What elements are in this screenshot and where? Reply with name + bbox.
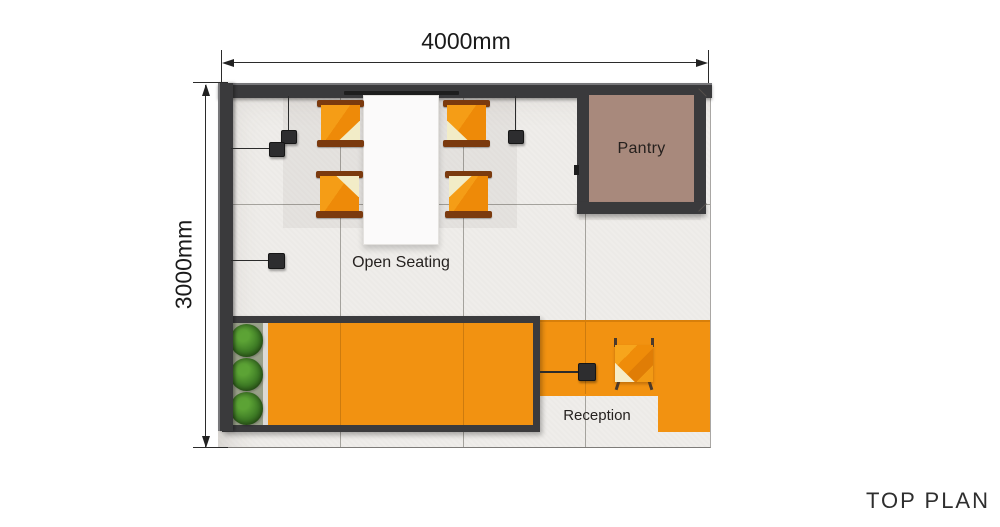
pantry-label: Pantry bbox=[617, 140, 665, 158]
lamp-wire-5 bbox=[540, 371, 578, 373]
pantry-wall-bottom bbox=[577, 202, 706, 214]
lamp-wire-1 bbox=[288, 96, 289, 130]
pendant-light-icon bbox=[578, 363, 596, 381]
lamp-wire-4 bbox=[231, 260, 268, 261]
reception-label: Reception bbox=[537, 407, 657, 424]
reception-carpet-extension bbox=[658, 394, 710, 432]
chair-seat bbox=[321, 105, 360, 142]
grid-overlay-desk-1 bbox=[340, 323, 341, 425]
chair-cushion bbox=[449, 176, 472, 197]
chair-front-rail bbox=[317, 140, 364, 147]
wall-left bbox=[218, 83, 233, 431]
arrow-left-icon bbox=[222, 59, 234, 67]
width-dimension-label: 4000mm bbox=[366, 28, 566, 55]
lamp-wire-3 bbox=[515, 96, 516, 130]
plant-1 bbox=[230, 324, 263, 357]
dining-chair-bottom-left bbox=[318, 171, 361, 218]
page-title: TOP PLAN bbox=[858, 488, 998, 514]
chair-front-rail bbox=[443, 140, 490, 147]
height-extension-tick-top bbox=[193, 82, 228, 83]
height-dimension-label: 3000mm bbox=[171, 220, 198, 310]
width-extension-tick-left bbox=[221, 50, 222, 83]
pendant-light-icon bbox=[508, 130, 524, 144]
height-dimension-line bbox=[205, 85, 206, 447]
height-extension-tick-bottom bbox=[193, 447, 228, 448]
pendant-light-icon bbox=[269, 142, 285, 157]
dining-table bbox=[363, 95, 439, 245]
width-extension-tick-right bbox=[708, 50, 709, 83]
dining-chair-bottom-right bbox=[447, 171, 490, 218]
grid-overlay-carpet bbox=[585, 322, 586, 394]
chair-front-rail bbox=[445, 211, 492, 218]
pantry-door-handle bbox=[574, 165, 579, 175]
chair-seat bbox=[447, 105, 486, 142]
pendant-light-icon bbox=[268, 253, 285, 269]
chair-cushion bbox=[447, 121, 470, 142]
dining-chair-top-left bbox=[319, 100, 362, 147]
plant-2 bbox=[230, 358, 263, 391]
chair-seat bbox=[320, 176, 359, 213]
pantry-wall-right bbox=[694, 95, 706, 214]
reception-desk-top bbox=[268, 323, 533, 425]
grid-overlay-desk-2 bbox=[463, 323, 464, 425]
arrow-up-icon bbox=[202, 84, 210, 96]
dining-chair-top-right bbox=[445, 100, 488, 147]
chair-cushion bbox=[336, 176, 359, 197]
chair-cushion bbox=[615, 363, 635, 382]
plant-3 bbox=[230, 392, 263, 425]
pantry-shadow bbox=[579, 214, 701, 220]
chair-front-rail bbox=[316, 211, 363, 218]
open-seating-label: Open Seating bbox=[321, 254, 481, 272]
width-dimension-line bbox=[227, 62, 705, 63]
reception-chair bbox=[612, 341, 656, 388]
chair-seat bbox=[449, 176, 488, 213]
chair-seat bbox=[615, 345, 653, 382]
chair-cushion bbox=[337, 121, 360, 142]
arrow-right-icon bbox=[696, 59, 708, 67]
lamp-wire-2 bbox=[231, 148, 269, 149]
pantry-room: Pantry bbox=[589, 95, 694, 202]
pantry-wall-left bbox=[577, 95, 589, 214]
floor-plan-canvas: Pantry bbox=[0, 0, 1000, 527]
